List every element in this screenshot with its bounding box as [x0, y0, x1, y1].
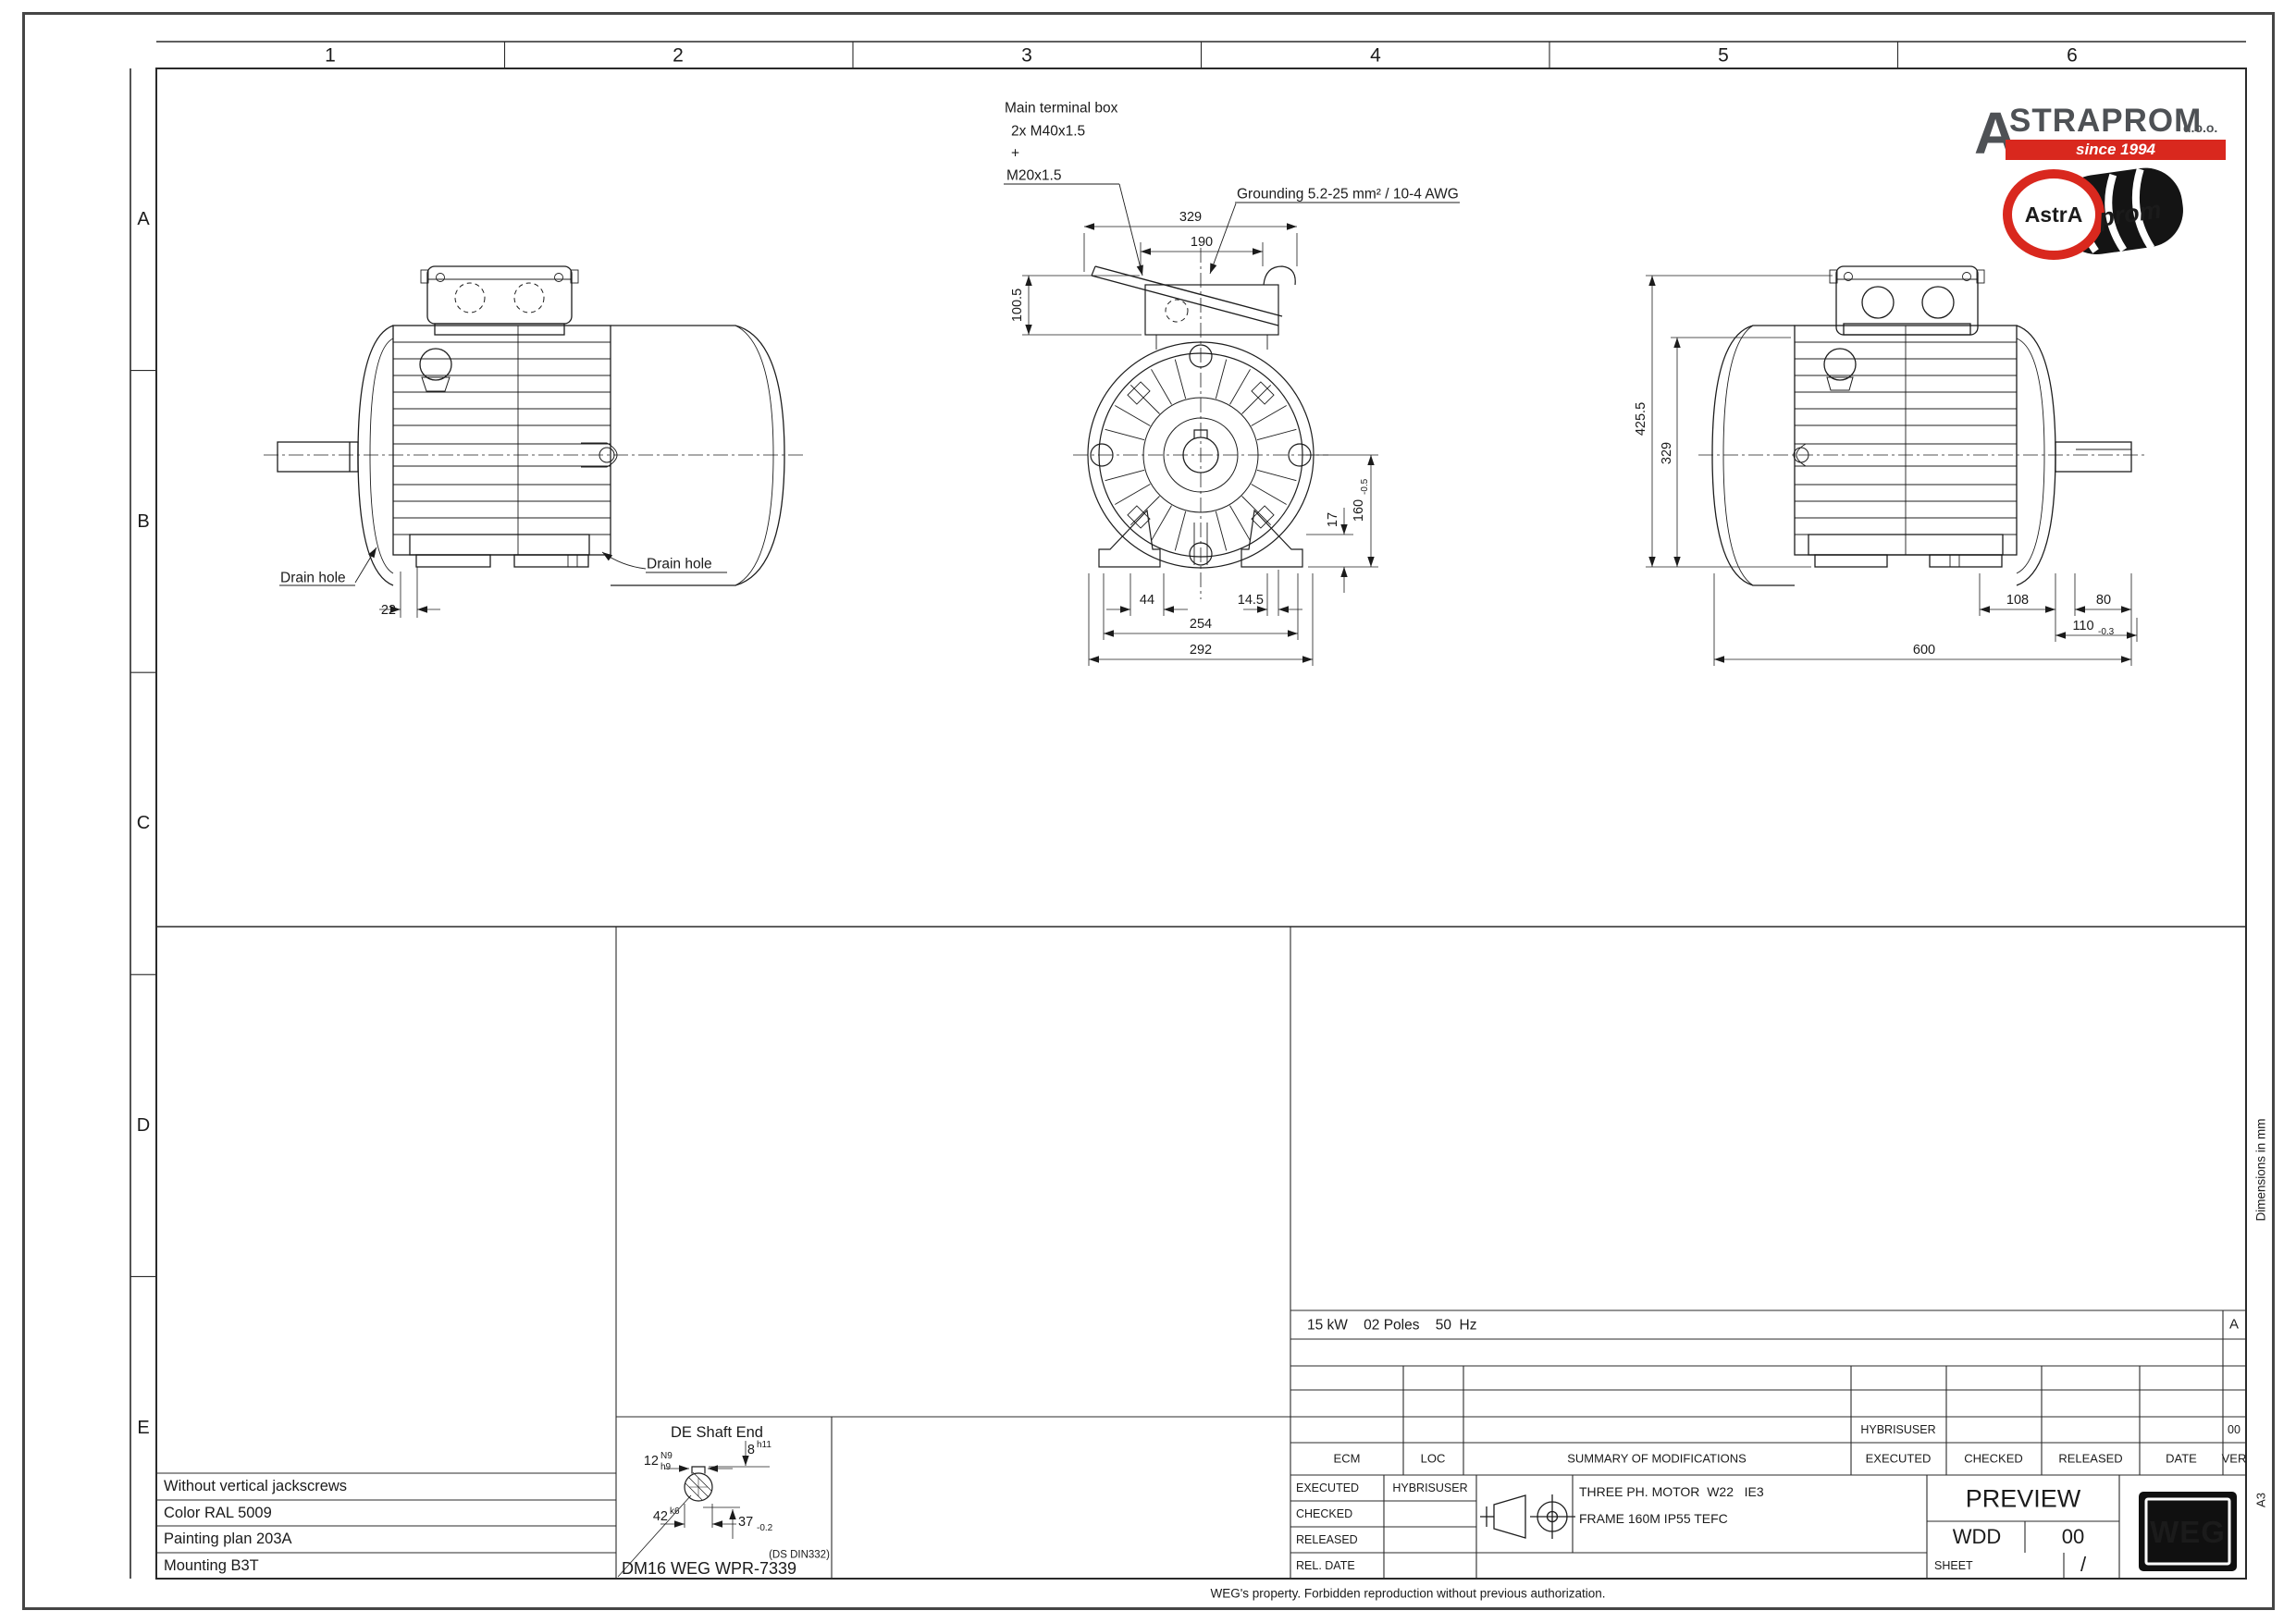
- rating-revision: A: [2229, 1318, 2239, 1332]
- dim-329-right: 329: [1660, 442, 1674, 464]
- titleblock-sheet-label: SHEET: [1934, 1560, 1973, 1572]
- front-view-dimension-lines: [1022, 227, 1378, 666]
- dim-44: 44: [1140, 593, 1154, 608]
- note-painting: Painting plan 203A: [164, 1531, 292, 1547]
- brand-suffix: d.o.o.: [2183, 121, 2217, 134]
- dim-42-sup: k6: [670, 1506, 680, 1517]
- terminal-box-callout-line2: 2x M40x1.5: [1011, 124, 1085, 139]
- weg-logo: WEG: [2139, 1492, 2237, 1571]
- dim-17: 17: [1326, 512, 1340, 527]
- motor-side-view-right: [1646, 266, 2148, 666]
- projection-symbol-icon: [1480, 1494, 1575, 1539]
- shaft-end-detail-drawing: [618, 1441, 770, 1577]
- sheet-frame: [24, 14, 2274, 1609]
- revision-header-executed: EXECUTED: [1866, 1453, 1932, 1465]
- revision-header-released: RELEASED: [2058, 1453, 2122, 1465]
- rating-text: 15 kW 02 Poles 50 Hz: [1307, 1318, 1477, 1333]
- titleblock-sheet-value: /: [2080, 1555, 2086, 1575]
- dim-37: 37: [738, 1515, 753, 1530]
- grid-column-5: 5: [1718, 46, 1729, 66]
- dim-110: 110: [2072, 619, 2093, 633]
- shaft-detail-center-hole: DM16 WEG WPR-7339: [622, 1560, 796, 1577]
- dimensions-unit-note: Dimensions in mm: [2254, 1118, 2267, 1221]
- brand-tagline: since 1994: [2076, 141, 2155, 159]
- right-view-dimension-lines: [1646, 276, 2137, 666]
- dim-14-5: 14.5: [1238, 593, 1264, 608]
- brand-tagline-banner: since 1994: [2006, 140, 2226, 160]
- revision-entry-executed: HYBRISUSER: [1860, 1424, 1935, 1436]
- dim-37-tol: -0.2: [757, 1523, 773, 1533]
- grid-row-e: E: [137, 1419, 149, 1437]
- drawing-sheet: WEG AstrA prom 22 329 190 100.5 160 -0.5…: [0, 0, 2296, 1623]
- titleblock-executed-value: HYBRISUSER: [1392, 1482, 1467, 1494]
- revision-header-ver: VER: [2222, 1453, 2247, 1465]
- shaft-detail-title: DE Shaft End: [671, 1425, 763, 1441]
- revision-header-date: DATE: [2166, 1453, 2197, 1465]
- grid-column-2: 2: [673, 46, 684, 66]
- dim-12-sub: h9: [660, 1462, 672, 1472]
- drain-hole-label-right: Drain hole: [647, 557, 712, 572]
- grid-column-6: 6: [2067, 46, 2078, 66]
- note-jackscrews: Without vertical jackscrews: [164, 1479, 347, 1494]
- note-mounting: Mounting B3T: [164, 1558, 259, 1574]
- note-color: Color RAL 5009: [164, 1506, 272, 1521]
- dim-292: 292: [1190, 643, 1212, 658]
- motor-side-view-left: [264, 266, 803, 618]
- astraprom-badge-icon: AstrA prom: [2007, 163, 2188, 260]
- dim-80: 80: [2096, 593, 2111, 608]
- titleblock-description-line1: THREE PH. MOTOR W22 IE3: [1579, 1485, 1764, 1498]
- titleblock-released-label: RELEASED: [1296, 1534, 1358, 1546]
- titleblock-description-line2: FRAME 160M IP55 TEFC: [1579, 1512, 1728, 1525]
- grid-row-c: C: [137, 814, 150, 832]
- terminal-box-callout-line4: M20x1.5: [1006, 168, 1061, 183]
- grid-column-4: 4: [1370, 46, 1381, 66]
- drain-hole-label-left: Drain hole: [280, 571, 346, 585]
- dim-190: 190: [1191, 235, 1213, 250]
- dim-110-tol: -0.3: [2098, 627, 2115, 637]
- terminal-box-callout-line3: +: [1011, 146, 1019, 161]
- revision-header-checked: CHECKED: [1964, 1453, 2023, 1465]
- brand-name: STRAPROM: [2009, 105, 2202, 137]
- dim-600: 600: [1913, 643, 1935, 658]
- dim-160: 160: [1352, 499, 1366, 522]
- grid-column-3: 3: [1021, 46, 1032, 66]
- grid-row-d: D: [137, 1116, 150, 1135]
- motor-front-view: [1004, 184, 1460, 666]
- grounding-callout: Grounding 5.2-25 mm² / 10-4 AWG: [1237, 187, 1459, 202]
- titleblock-checked-label: CHECKED: [1296, 1508, 1352, 1520]
- drawing-canvas: WEG AstrA prom 22 329 190 100.5 160 -0.5…: [0, 0, 2296, 1623]
- dim-425-5: 425.5: [1634, 402, 1648, 436]
- titleblock-executed-label: EXECUTED: [1296, 1482, 1359, 1494]
- grid-row-b: B: [137, 512, 149, 531]
- weg-logo-text: WEG: [2150, 1515, 2226, 1549]
- titleblock-doc-type: WDD: [1953, 1527, 2002, 1547]
- badge-astra-text: AstrA: [2025, 203, 2083, 227]
- revision-header-ecm: ECM: [1334, 1453, 1361, 1465]
- dim-8: 8: [747, 1443, 755, 1457]
- grid-column-1: 1: [325, 46, 336, 66]
- dim-254: 254: [1190, 617, 1212, 632]
- copyright-footer: WEG's property. Forbidden reproduction w…: [1210, 1587, 1605, 1600]
- dim-100-5: 100.5: [1010, 289, 1025, 322]
- revision-entry-ver: 00: [2228, 1424, 2240, 1436]
- titleblock-rel-date-label: REL. DATE: [1296, 1560, 1355, 1572]
- dim-12: 12: [644, 1454, 659, 1469]
- dim-42: 42: [653, 1509, 668, 1524]
- dim-8-sup: h11: [757, 1440, 772, 1450]
- revision-header-summary: SUMMARY OF MODIFICATIONS: [1567, 1453, 1747, 1465]
- dim-12-sup: N9: [660, 1451, 673, 1461]
- dim-160-tol: -0.5: [1360, 478, 1370, 495]
- titleblock-doc-ver: 00: [2062, 1527, 2084, 1547]
- grid-row-a: A: [137, 210, 149, 228]
- revision-header-loc: LOC: [1421, 1453, 1446, 1465]
- dim-108: 108: [2006, 593, 2029, 608]
- titleblock-status: PREVIEW: [1966, 1487, 2081, 1512]
- paper-size-label: A3: [2255, 1493, 2267, 1507]
- dim-329-front: 329: [1179, 210, 1202, 225]
- dim-22: 22: [381, 603, 396, 618]
- terminal-box-callout-line1: Main terminal box: [1005, 101, 1117, 116]
